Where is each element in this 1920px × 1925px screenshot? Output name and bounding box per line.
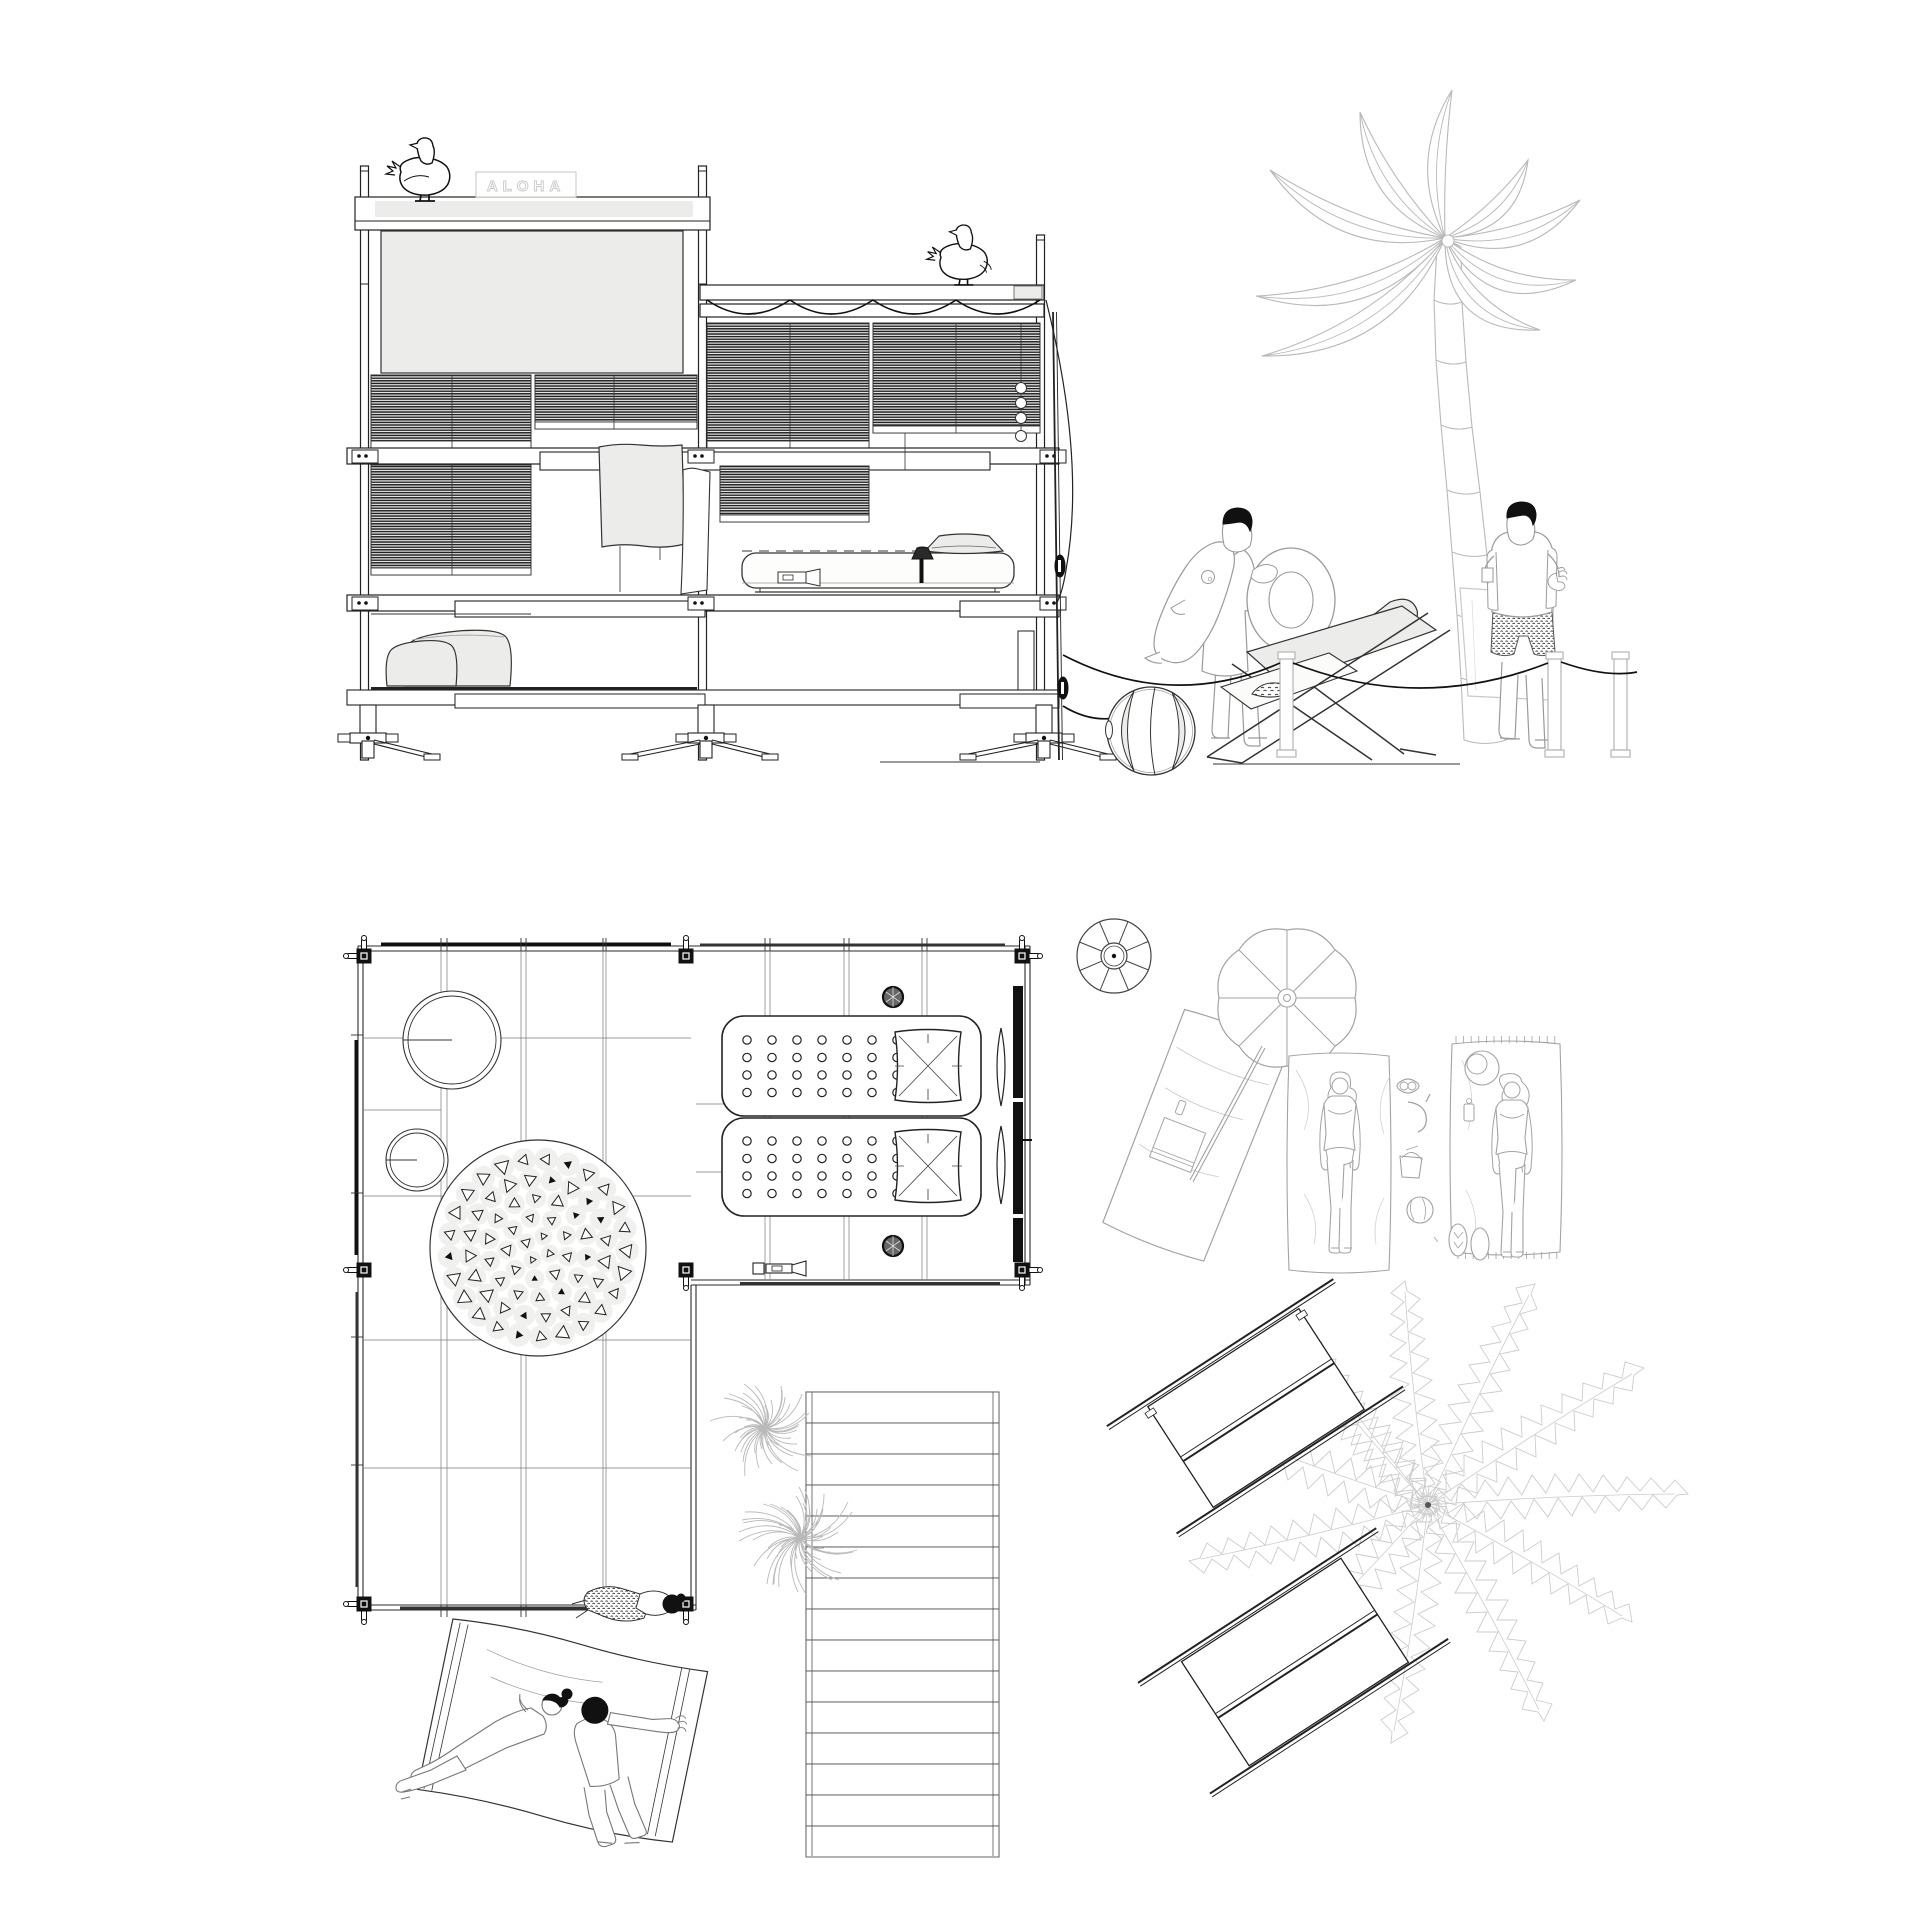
- svg-text:ALOHA: ALOHA: [487, 178, 565, 195]
